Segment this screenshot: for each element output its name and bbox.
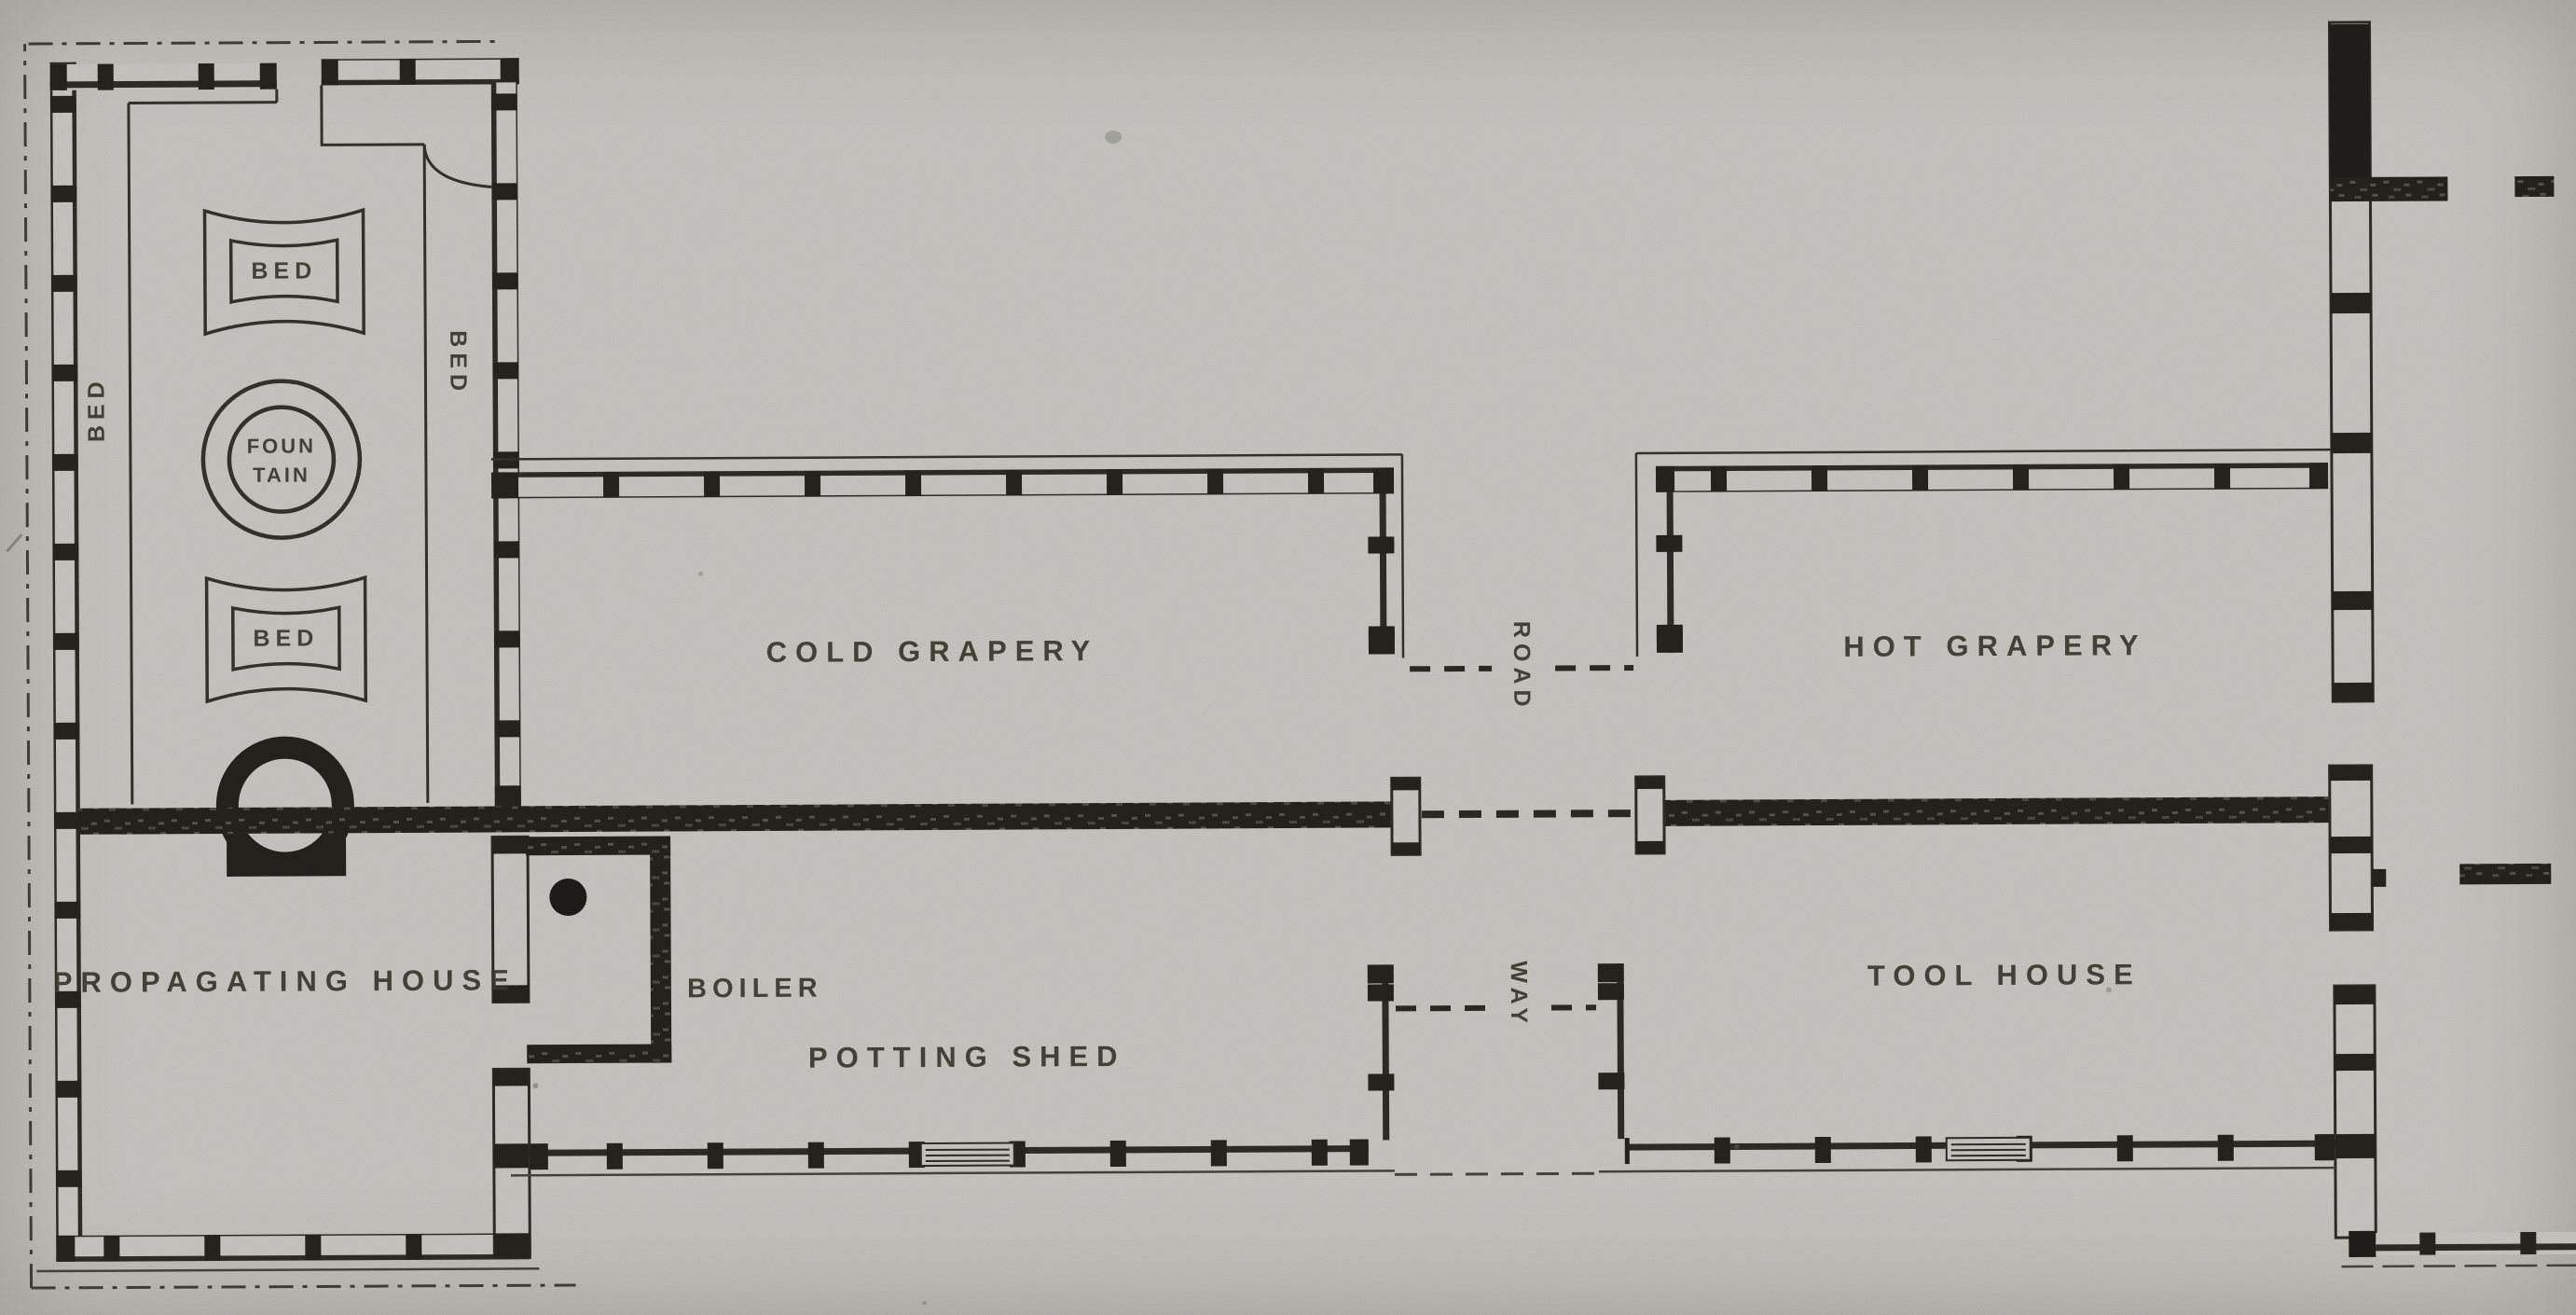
- floor-plan-drawing: PROPAGATING HOUSE COLD GRAPERY HOT GRAPE…: [0, 0, 2576, 1315]
- paper-grain: [0, 0, 2576, 1315]
- scanned-plan-page: PROPAGATING HOUSE COLD GRAPERY HOT GRAPE…: [0, 0, 2576, 1315]
